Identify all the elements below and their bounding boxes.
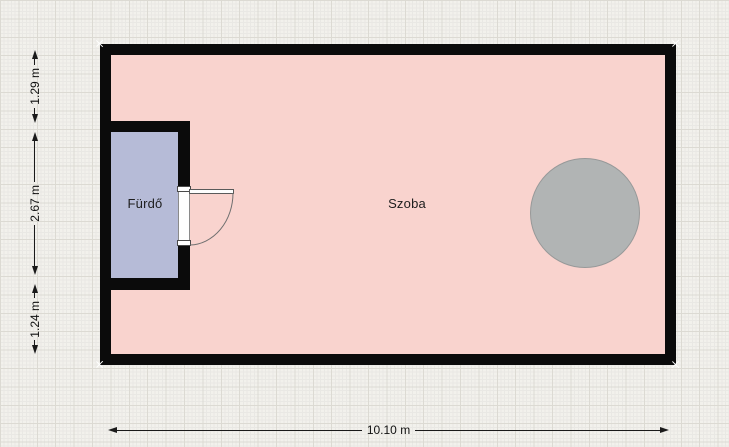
dimension-line — [415, 430, 660, 431]
wall-corner-handle[interactable] — [95, 360, 104, 369]
dimension-bottom: 10.10 m — [108, 423, 669, 437]
dimension-left-1: 1.29 m — [27, 50, 42, 123]
dimension-label: 10.10 m — [362, 423, 415, 437]
dimension-line — [34, 225, 35, 266]
door[interactable] — [175, 185, 250, 251]
wall-corner-handle[interactable] — [671, 39, 680, 48]
arrow-up-icon — [32, 132, 38, 141]
dimension-label: 1.24 m — [28, 298, 42, 341]
arrow-left-icon — [108, 427, 117, 433]
dimension-line — [117, 430, 362, 431]
arrow-down-icon — [32, 345, 38, 354]
dimension-line — [34, 141, 35, 182]
dimension-left-2: 2.67 m — [27, 132, 42, 275]
arrow-down-icon — [32, 114, 38, 123]
dimension-line — [34, 293, 35, 298]
arrow-down-icon — [32, 266, 38, 275]
dimension-label: 1.29 m — [28, 65, 42, 108]
room-label-szoba: Szoba — [367, 196, 447, 211]
arrow-right-icon — [660, 427, 669, 433]
arrow-up-icon — [32, 50, 38, 59]
dimension-label: 2.67 m — [28, 182, 42, 225]
wall-corner-handle[interactable] — [671, 360, 680, 369]
round-table[interactable] — [530, 158, 640, 268]
floorplan-canvas: Szoba Fürdő 1.29 m 2.67 m 1.24 m 10.10 m — [0, 0, 729, 447]
wall-corner-handle[interactable] — [95, 39, 104, 48]
dimension-left-3: 1.24 m — [27, 284, 42, 354]
arrow-up-icon — [32, 284, 38, 293]
room-label-furdo: Fürdő — [111, 196, 179, 211]
door-swing-arc-icon — [175, 185, 250, 251]
